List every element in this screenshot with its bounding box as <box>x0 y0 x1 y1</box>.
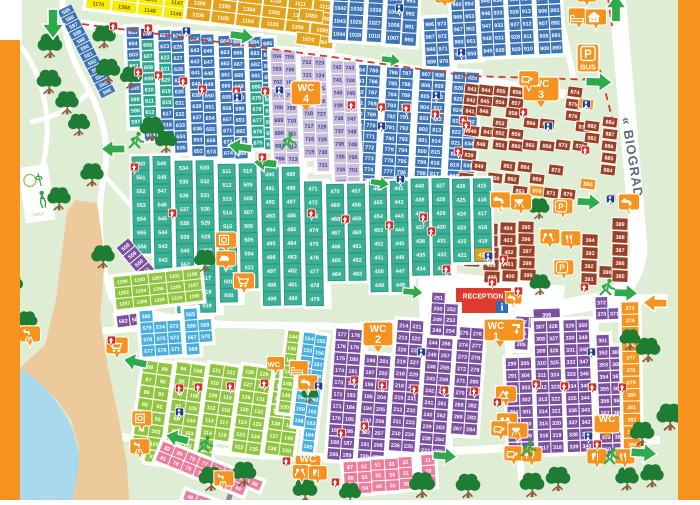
svg-text:RECEPTION: RECEPTION <box>463 294 504 301</box>
svg-text:1200: 1200 <box>134 277 146 284</box>
svg-text:421: 421 <box>457 253 466 259</box>
svg-text:231: 231 <box>407 396 416 403</box>
svg-text:347: 347 <box>579 359 588 365</box>
svg-text:432: 432 <box>437 252 446 258</box>
svg-text:416: 416 <box>477 197 486 203</box>
svg-text:660: 660 <box>222 83 231 89</box>
svg-text:204: 204 <box>377 395 386 402</box>
svg-text:92: 92 <box>156 404 163 411</box>
svg-text:854: 854 <box>495 99 506 106</box>
svg-text:742: 742 <box>332 65 341 71</box>
svg-text:271: 271 <box>456 378 465 385</box>
svg-text:427: 427 <box>436 183 445 189</box>
svg-text:397: 397 <box>522 249 531 255</box>
svg-text:580: 580 <box>142 314 151 321</box>
svg-text:171: 171 <box>332 404 341 411</box>
svg-text:3: 3 <box>538 89 544 101</box>
svg-text:390: 390 <box>602 270 611 276</box>
svg-text:206: 206 <box>375 419 384 426</box>
svg-text:435: 435 <box>416 253 425 259</box>
svg-text:792: 792 <box>399 126 408 132</box>
svg-text:263: 263 <box>436 425 445 432</box>
svg-text:466: 466 <box>331 244 340 250</box>
svg-text:322: 322 <box>551 396 560 402</box>
svg-text:908: 908 <box>539 33 548 39</box>
svg-text:886: 886 <box>604 143 614 150</box>
svg-text:769: 769 <box>367 112 376 118</box>
svg-text:572: 572 <box>170 335 179 342</box>
svg-text:929: 929 <box>512 47 521 53</box>
svg-text:1027: 1027 <box>368 20 381 27</box>
svg-text:464: 464 <box>332 272 342 278</box>
svg-text:392: 392 <box>584 264 593 270</box>
svg-text:907: 907 <box>539 21 548 27</box>
svg-text:166: 166 <box>329 452 338 459</box>
svg-text:692: 692 <box>236 129 245 135</box>
svg-text:184: 184 <box>346 405 355 412</box>
svg-text:717: 717 <box>305 124 314 130</box>
svg-text:210: 210 <box>391 431 400 438</box>
svg-text:331: 331 <box>566 348 575 354</box>
svg-text:780: 780 <box>385 136 394 142</box>
svg-text:328: 328 <box>549 324 558 330</box>
svg-text:445: 445 <box>395 241 404 247</box>
svg-text:495: 495 <box>266 241 275 247</box>
svg-text:860: 860 <box>511 143 521 150</box>
svg-text:906: 906 <box>538 8 547 14</box>
svg-text:242: 242 <box>425 388 434 395</box>
svg-text:494: 494 <box>266 227 276 233</box>
svg-text:530: 530 <box>201 207 210 213</box>
svg-text:857: 857 <box>511 100 521 107</box>
svg-text:890: 890 <box>552 45 561 51</box>
svg-text:267: 267 <box>453 426 462 433</box>
svg-text:88: 88 <box>147 365 154 372</box>
svg-text:352: 352 <box>599 350 608 356</box>
svg-text:492: 492 <box>266 200 275 206</box>
svg-text:108: 108 <box>193 368 203 375</box>
svg-text:539: 539 <box>180 235 189 241</box>
svg-text:512: 512 <box>222 183 231 189</box>
svg-text:422: 422 <box>457 239 466 245</box>
svg-text:567: 567 <box>188 335 197 342</box>
svg-text:150: 150 <box>282 448 292 455</box>
svg-text:971: 971 <box>438 46 447 52</box>
svg-text:1208: 1208 <box>136 299 148 306</box>
svg-text:608: 608 <box>144 65 153 71</box>
svg-text:i: i <box>500 302 503 314</box>
svg-text:880: 880 <box>583 181 593 188</box>
svg-text:667: 667 <box>234 62 243 68</box>
svg-text:1010: 1010 <box>368 33 381 40</box>
svg-text:118: 118 <box>221 407 230 414</box>
svg-text:642: 642 <box>191 59 200 65</box>
svg-text:565: 565 <box>186 312 195 319</box>
svg-text:493: 493 <box>266 214 275 220</box>
svg-text:351: 351 <box>598 338 607 344</box>
svg-text:808: 808 <box>435 73 444 79</box>
svg-text:370: 370 <box>597 312 606 318</box>
svg-text:570: 570 <box>201 334 210 341</box>
svg-text:109: 109 <box>208 393 218 400</box>
svg-text:132: 132 <box>254 409 264 416</box>
svg-text:646: 646 <box>203 49 212 55</box>
svg-text:553: 553 <box>137 203 146 209</box>
svg-text:988: 988 <box>426 47 435 53</box>
svg-text:870: 870 <box>532 188 542 195</box>
svg-text:1201: 1201 <box>152 275 164 282</box>
svg-text:483: 483 <box>288 255 297 261</box>
svg-text:P: P <box>559 262 565 272</box>
svg-text:394: 394 <box>585 238 595 244</box>
svg-text:874: 874 <box>570 89 581 96</box>
svg-text:474: 474 <box>309 228 319 234</box>
svg-text:497: 497 <box>267 269 276 275</box>
svg-text:876: 876 <box>568 113 578 120</box>
svg-text:377: 377 <box>626 355 635 361</box>
svg-text:49: 49 <box>376 484 382 490</box>
svg-text:671: 671 <box>223 128 232 134</box>
svg-text:652: 652 <box>194 149 203 155</box>
svg-text:349: 349 <box>579 335 588 341</box>
svg-text:419: 419 <box>478 239 487 245</box>
svg-text:774: 774 <box>364 167 374 174</box>
svg-text:577: 577 <box>144 349 153 356</box>
svg-text:630: 630 <box>175 89 184 95</box>
svg-text:208: 208 <box>373 443 382 450</box>
svg-text:845: 845 <box>480 98 490 105</box>
svg-text:330: 330 <box>566 335 575 341</box>
svg-text:627: 627 <box>174 56 183 62</box>
svg-text:490: 490 <box>265 172 274 178</box>
svg-text:529: 529 <box>201 221 210 227</box>
svg-text:P: P <box>558 201 564 211</box>
svg-text:250: 250 <box>433 306 442 312</box>
svg-text:528: 528 <box>201 234 210 240</box>
svg-text:148: 148 <box>283 381 293 388</box>
svg-text:333: 333 <box>567 372 576 378</box>
svg-text:246: 246 <box>427 364 436 371</box>
svg-text:986: 986 <box>425 22 434 28</box>
svg-text:1044: 1044 <box>333 32 346 39</box>
svg-text:843: 843 <box>467 86 477 93</box>
svg-text:887: 887 <box>605 131 615 138</box>
svg-text:928: 928 <box>511 34 520 40</box>
svg-text:221: 221 <box>412 324 421 331</box>
svg-text:386: 386 <box>615 261 624 267</box>
svg-text:710: 710 <box>287 118 296 124</box>
svg-text:779: 779 <box>384 147 393 153</box>
svg-text:768: 768 <box>367 101 376 107</box>
svg-text:155: 155 <box>316 338 326 345</box>
svg-text:861: 861 <box>503 163 513 170</box>
svg-text:285: 285 <box>517 342 526 348</box>
svg-text:718: 718 <box>304 111 313 117</box>
svg-text:631: 631 <box>175 101 184 107</box>
svg-text:787: 787 <box>402 71 411 77</box>
svg-text:339: 339 <box>569 444 578 450</box>
svg-text:470: 470 <box>330 189 339 195</box>
svg-text:713: 713 <box>288 157 297 163</box>
svg-text:800: 800 <box>417 149 426 155</box>
svg-text:443: 443 <box>395 214 404 220</box>
svg-text:131: 131 <box>256 396 266 403</box>
svg-text:430: 430 <box>437 225 446 231</box>
svg-text:453: 453 <box>374 228 383 234</box>
svg-text:314: 314 <box>539 409 548 415</box>
svg-text:33: 33 <box>388 462 394 468</box>
svg-text:273: 273 <box>458 354 467 361</box>
svg-text:987: 987 <box>426 34 435 40</box>
svg-text:277: 277 <box>472 343 481 350</box>
svg-text:535: 535 <box>179 180 188 186</box>
svg-text:154: 154 <box>304 336 314 343</box>
svg-text:379: 379 <box>627 380 636 386</box>
svg-text:211: 211 <box>392 419 401 426</box>
svg-text:786: 786 <box>389 70 398 76</box>
svg-text:219: 219 <box>396 359 405 366</box>
svg-text:291: 291 <box>508 373 517 379</box>
svg-text:770: 770 <box>366 123 375 129</box>
svg-text:632: 632 <box>175 112 184 118</box>
svg-text:825: 825 <box>453 97 462 103</box>
svg-text:476: 476 <box>310 255 319 261</box>
svg-text:205: 205 <box>376 407 385 414</box>
svg-text:467: 467 <box>331 230 340 236</box>
svg-text:925: 925 <box>509 0 518 3</box>
svg-text:94: 94 <box>180 366 187 373</box>
svg-text:222: 222 <box>411 336 420 343</box>
svg-text:721: 721 <box>303 73 312 79</box>
svg-text:335: 335 <box>568 396 577 402</box>
svg-text:423: 423 <box>457 225 466 231</box>
svg-text:213: 213 <box>398 335 407 342</box>
svg-text:745: 745 <box>346 91 355 97</box>
svg-text:555: 555 <box>137 230 146 236</box>
svg-text:783: 783 <box>387 103 396 109</box>
svg-text:485: 485 <box>287 227 296 233</box>
svg-text:766: 766 <box>368 79 377 85</box>
svg-text:948: 948 <box>483 36 492 42</box>
svg-text:54: 54 <box>362 486 368 492</box>
svg-text:181: 181 <box>348 369 357 376</box>
svg-text:633: 633 <box>176 123 185 129</box>
svg-text:458: 458 <box>352 203 361 209</box>
svg-text:722: 722 <box>302 60 311 66</box>
svg-text:547: 547 <box>157 189 166 195</box>
svg-text:125: 125 <box>239 407 249 414</box>
svg-text:442: 442 <box>394 200 403 206</box>
svg-text:643: 643 <box>190 48 199 54</box>
svg-text:404: 404 <box>503 226 513 232</box>
svg-text:1202: 1202 <box>169 273 181 280</box>
svg-text:134: 134 <box>250 434 260 441</box>
svg-text:261: 261 <box>437 401 446 408</box>
svg-text:129: 129 <box>259 371 269 378</box>
svg-text:385: 385 <box>615 274 624 280</box>
svg-text:554: 554 <box>137 217 147 223</box>
svg-text:511: 511 <box>222 169 231 175</box>
svg-text:133: 133 <box>252 421 262 428</box>
svg-text:283: 283 <box>467 415 476 422</box>
svg-text:491: 491 <box>265 186 274 192</box>
svg-text:372: 372 <box>597 300 606 306</box>
svg-text:791: 791 <box>400 115 409 121</box>
svg-text:238: 238 <box>422 436 431 443</box>
svg-text:685: 685 <box>263 41 272 47</box>
svg-text:236: 236 <box>391 443 400 450</box>
svg-text:538: 538 <box>180 221 189 227</box>
svg-text:778: 778 <box>384 158 393 164</box>
svg-text:973: 973 <box>437 21 446 27</box>
svg-text:194: 194 <box>363 406 372 413</box>
svg-text:189: 189 <box>342 452 351 459</box>
svg-text:678: 678 <box>252 107 261 113</box>
svg-text:268: 268 <box>454 414 463 421</box>
svg-text:841: 841 <box>465 108 475 115</box>
svg-text:177: 177 <box>337 332 346 339</box>
svg-text:192: 192 <box>361 430 370 437</box>
svg-text:531: 531 <box>200 193 209 199</box>
svg-text:912: 912 <box>522 21 531 27</box>
svg-text:510: 510 <box>243 169 252 175</box>
svg-text:913: 913 <box>522 9 531 15</box>
svg-text:967: 967 <box>454 27 463 33</box>
svg-text:993: 993 <box>406 0 415 5</box>
svg-text:879: 879 <box>563 191 573 198</box>
svg-text:87: 87 <box>145 377 152 384</box>
svg-text:819: 819 <box>450 162 459 168</box>
svg-text:673: 673 <box>207 149 216 155</box>
svg-text:927: 927 <box>510 22 519 28</box>
svg-text:582: 582 <box>119 318 129 325</box>
svg-text:914: 914 <box>521 0 530 3</box>
svg-text:1028: 1028 <box>349 32 362 39</box>
svg-text:663: 663 <box>220 50 229 56</box>
svg-text:346: 346 <box>580 371 589 377</box>
svg-text:201: 201 <box>379 359 388 366</box>
svg-text:727: 727 <box>317 112 326 118</box>
svg-text:112: 112 <box>206 405 215 412</box>
svg-text:163: 163 <box>306 420 316 427</box>
svg-text:303: 303 <box>151 429 161 436</box>
svg-text:933: 933 <box>493 10 502 16</box>
svg-text:1196: 1196 <box>189 293 200 300</box>
svg-text:304: 304 <box>521 373 530 379</box>
svg-text:50: 50 <box>375 473 381 479</box>
svg-text:400: 400 <box>505 274 514 280</box>
svg-text:450: 450 <box>375 269 384 275</box>
svg-text:378: 378 <box>626 368 635 374</box>
svg-text:308: 308 <box>536 336 545 342</box>
svg-text:607: 607 <box>143 54 152 60</box>
svg-text:1209: 1209 <box>154 297 166 304</box>
svg-text:657: 657 <box>223 117 232 123</box>
svg-text:110: 110 <box>210 380 219 387</box>
svg-text:858: 858 <box>508 110 518 117</box>
svg-text:703: 703 <box>272 67 281 73</box>
svg-text:212: 212 <box>393 407 402 414</box>
svg-text:639: 639 <box>192 93 201 99</box>
svg-text:573: 573 <box>169 324 178 331</box>
svg-text:609: 609 <box>144 76 153 82</box>
svg-text:489: 489 <box>286 172 295 178</box>
svg-text:548: 548 <box>157 175 166 181</box>
svg-text:355: 355 <box>600 387 609 393</box>
svg-text:31: 31 <box>403 471 409 477</box>
svg-text:457: 457 <box>351 189 360 195</box>
svg-text:373: 373 <box>625 306 634 312</box>
svg-text:610: 610 <box>145 87 154 93</box>
svg-text:475: 475 <box>309 242 318 248</box>
svg-text:651: 651 <box>205 104 214 110</box>
svg-text:628: 628 <box>174 67 183 73</box>
svg-text:240: 240 <box>423 412 432 419</box>
svg-text:612: 612 <box>145 110 154 116</box>
svg-text:418: 418 <box>478 225 487 231</box>
svg-text:320: 320 <box>552 421 561 427</box>
svg-text:684: 684 <box>250 40 259 46</box>
svg-text:747: 747 <box>347 117 356 123</box>
svg-text:53: 53 <box>361 475 367 481</box>
svg-text:165: 165 <box>303 444 313 451</box>
svg-text:185: 185 <box>345 417 354 424</box>
svg-text:599: 599 <box>130 97 139 103</box>
svg-text:117: 117 <box>219 420 228 427</box>
svg-text:507: 507 <box>244 210 253 216</box>
svg-text:968: 968 <box>454 39 463 45</box>
svg-text:909: 909 <box>540 46 549 52</box>
svg-text:1007: 1007 <box>387 35 400 42</box>
svg-text:321: 321 <box>552 409 561 415</box>
svg-text:34: 34 <box>389 472 395 478</box>
svg-text:215: 215 <box>394 395 403 402</box>
svg-text:809: 809 <box>434 84 443 90</box>
svg-text:931: 931 <box>495 35 504 41</box>
svg-text:532: 532 <box>200 179 209 185</box>
svg-text:35: 35 <box>389 483 395 489</box>
svg-text:127: 127 <box>243 382 253 389</box>
svg-text:234: 234 <box>405 432 414 439</box>
svg-text:52: 52 <box>361 464 367 470</box>
svg-text:319: 319 <box>552 433 561 439</box>
svg-text:159: 159 <box>296 406 306 413</box>
svg-text:313: 313 <box>538 397 547 403</box>
svg-text:951: 951 <box>467 39 476 45</box>
svg-text:824: 824 <box>453 108 463 115</box>
svg-text:272: 272 <box>457 366 466 373</box>
svg-text:106: 106 <box>189 393 199 400</box>
svg-text:344: 344 <box>581 395 590 401</box>
svg-text:932: 932 <box>494 23 503 29</box>
svg-text:504: 504 <box>244 251 254 257</box>
svg-text:162: 162 <box>307 409 317 416</box>
svg-text:207: 207 <box>374 431 383 438</box>
svg-text:743: 743 <box>345 65 354 71</box>
svg-text:338: 338 <box>569 432 578 438</box>
svg-text:1006: 1006 <box>387 22 400 29</box>
svg-text:849: 849 <box>474 163 484 170</box>
svg-text:348: 348 <box>579 347 588 353</box>
svg-text:145: 145 <box>287 346 297 353</box>
svg-text:662: 662 <box>221 61 230 67</box>
svg-text:677: 677 <box>253 118 262 124</box>
svg-text:506: 506 <box>244 224 253 230</box>
svg-text:451: 451 <box>374 255 383 261</box>
svg-text:793: 793 <box>398 137 407 143</box>
svg-text:439: 439 <box>415 197 424 203</box>
svg-text:183: 183 <box>346 393 355 400</box>
